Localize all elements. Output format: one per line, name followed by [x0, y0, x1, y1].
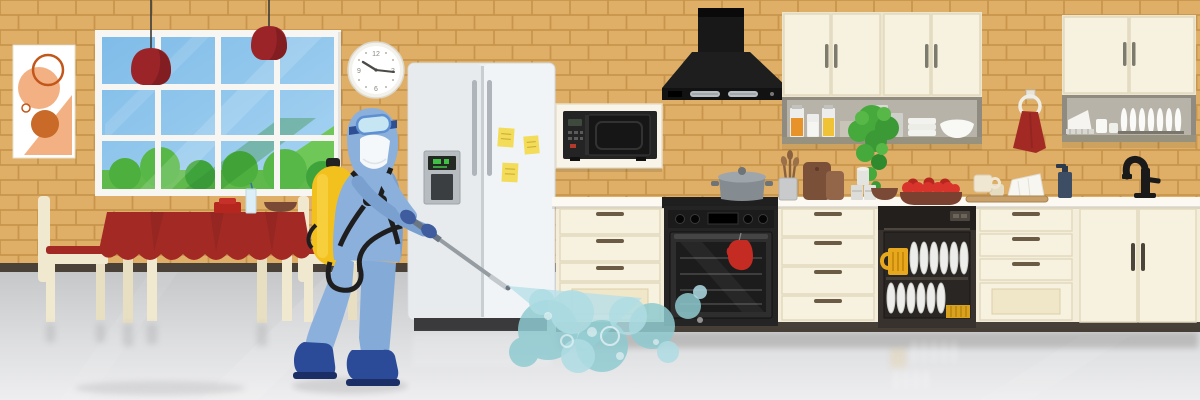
dishwasher	[878, 206, 976, 328]
wall-clock: 12 3 6 9	[348, 42, 404, 98]
worker-head	[347, 108, 398, 177]
upper-cabinets-center	[782, 12, 982, 97]
kitchen-illustration: 12 3 6 9	[0, 0, 1200, 400]
fridge-water-dispenser	[424, 151, 460, 204]
clock-numeral-6: 6	[374, 86, 378, 93]
clock-numeral-12: 12	[372, 51, 380, 58]
microwave	[556, 104, 662, 172]
fridge-handle-left	[472, 80, 477, 176]
fridge-handle-right	[487, 80, 492, 176]
drawer-unit-mid	[782, 209, 874, 320]
drawer-unit-right	[980, 209, 1072, 320]
clock-numeral-9: 9	[357, 68, 361, 75]
wall-art-frame	[13, 45, 75, 158]
open-shelf-right	[1062, 95, 1196, 148]
upper-cabinets-right	[1062, 15, 1196, 95]
tablecloth	[99, 212, 311, 260]
window	[95, 30, 342, 196]
scene-canvas: 12 3 6 9	[0, 0, 1200, 400]
